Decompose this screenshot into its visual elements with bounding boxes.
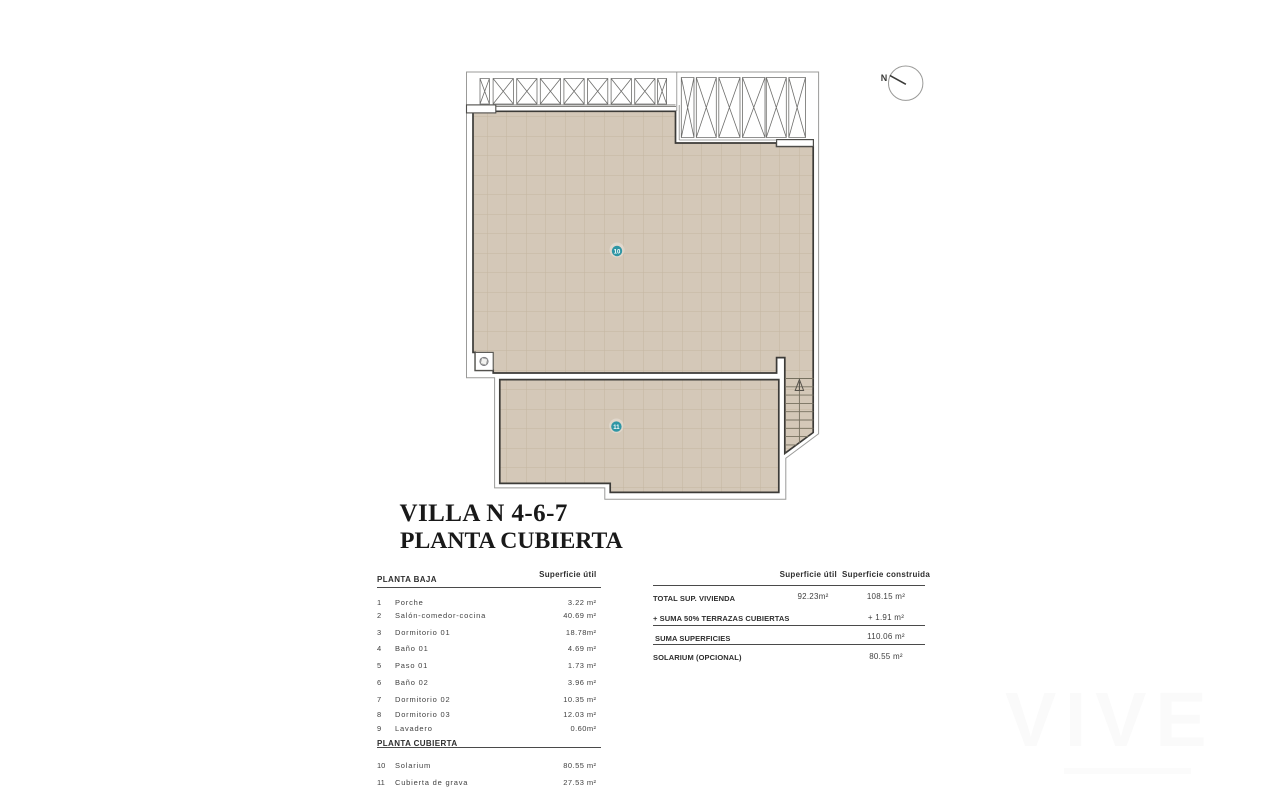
svg-text:11: 11: [613, 425, 620, 431]
svg-text:10: 10: [614, 250, 621, 256]
svg-text:N: N: [881, 73, 888, 83]
